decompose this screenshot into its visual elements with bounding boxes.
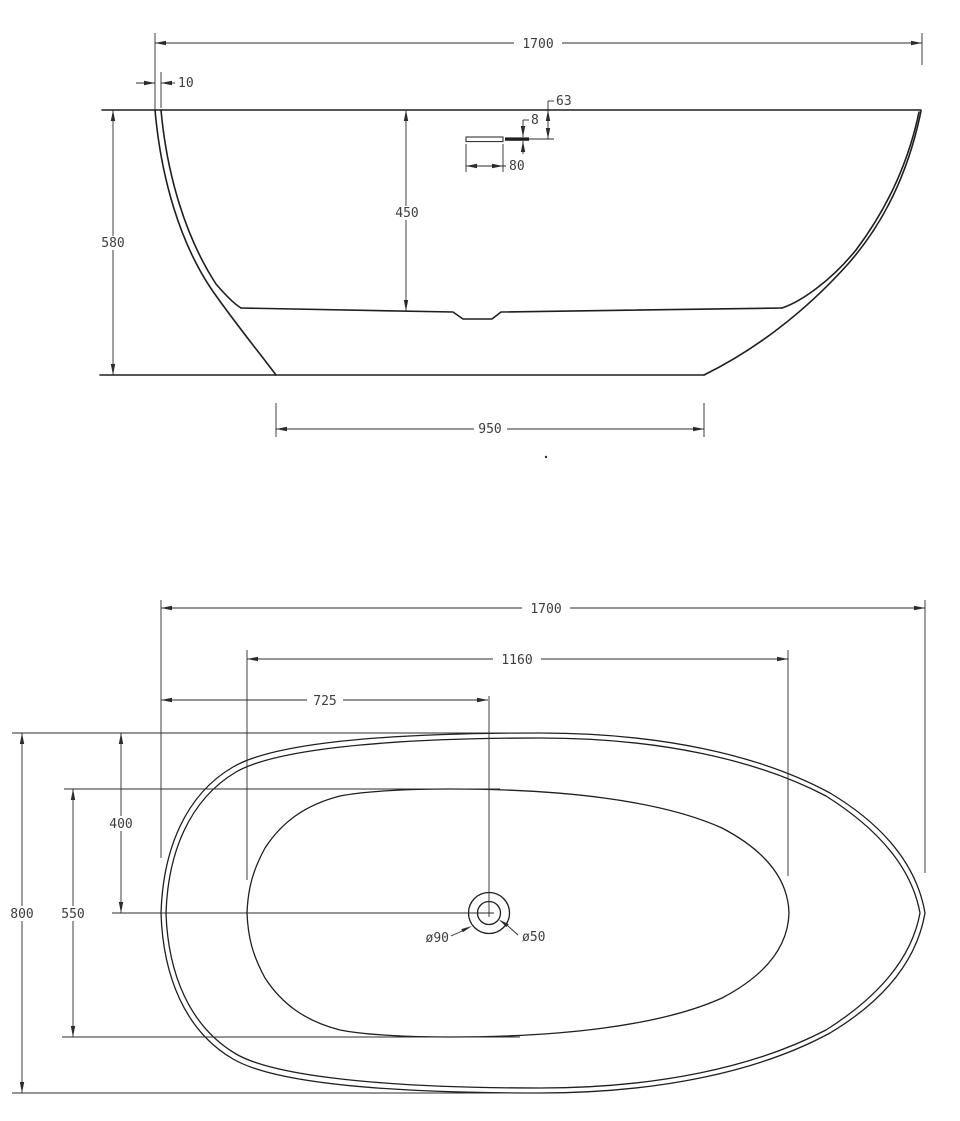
arrowhead (546, 110, 550, 121)
arrowhead (71, 1026, 75, 1037)
inner-floor-line-with-drain-recess (241, 308, 782, 319)
leader-line (451, 931, 463, 936)
arrowhead (466, 164, 477, 168)
arrowhead (71, 789, 75, 800)
overflow-slot-rect (466, 137, 503, 142)
arrowhead (477, 698, 488, 702)
dim-overall-width: 800 (6, 733, 38, 1093)
arrowhead (161, 698, 172, 702)
arrowhead (247, 657, 258, 661)
arrowhead (119, 733, 123, 744)
arrowhead (492, 164, 503, 168)
dim-label-rim-thickness: 10 (178, 76, 194, 91)
plan-view: 1700 1160 725 800 (6, 600, 925, 1093)
dim-overflow-slot-height: 8 (521, 113, 539, 154)
dim-label-overflow-drop: 63 (556, 94, 572, 109)
arrowhead (521, 141, 525, 152)
inner-wall-left (161, 110, 241, 308)
arrowhead (20, 733, 24, 744)
dim-label-inner-depth: 450 (395, 206, 418, 221)
dim-center-from-top: 400 (105, 733, 137, 913)
arrowhead (914, 606, 925, 610)
dim-label-plan-overall-length: 1700 (530, 602, 561, 617)
arrowhead (404, 300, 408, 311)
dim-label-overflow-slot-height: 8 (531, 113, 539, 128)
dim-label-inner-length: 1160 (501, 653, 532, 668)
outer-wall-right (704, 111, 921, 375)
leader-drain-inner-dia: ø50 (499, 919, 546, 945)
dim-rim-thickness: 10 (136, 72, 194, 108)
dim-label-center-from-top: 400 (109, 817, 132, 832)
bathtub-technical-drawing: 1700 10 580 450 (0, 0, 960, 1121)
arrowhead (111, 364, 115, 375)
stray-dot-mark (545, 456, 547, 458)
arrowhead (155, 41, 166, 45)
dim-base-length: 950 (276, 403, 704, 437)
dim-overflow-slot-width: 80 (466, 144, 525, 174)
dim-label-overflow-slot-width: 80 (509, 159, 525, 174)
arrowhead (111, 110, 115, 121)
arrowhead (777, 657, 788, 661)
arrowhead (521, 126, 525, 137)
arrowhead (20, 1082, 24, 1093)
side-elevation-view: 1700 10 580 450 (98, 33, 922, 458)
dim-label-drain-from-left: 725 (313, 694, 336, 709)
dim-side-overall-length: 1700 (155, 33, 922, 110)
label-drain-outer-dia: ø90 (426, 931, 449, 946)
leader-drain-outer-dia: ø90 (426, 926, 472, 946)
leader-line (508, 926, 518, 935)
arrowhead (144, 81, 155, 85)
arrowhead (276, 427, 287, 431)
dim-label-side-overall-length: 1700 (522, 37, 553, 52)
dim-label-overall-width: 800 (10, 907, 33, 922)
arrowhead (161, 606, 172, 610)
dim-label-inner-width: 550 (61, 907, 84, 922)
dim-inner-width: 550 (57, 789, 89, 1037)
arrowhead (161, 81, 172, 85)
dim-label-overall-height: 580 (101, 236, 124, 251)
arrowhead (461, 926, 472, 932)
arrowhead (693, 427, 704, 431)
arrowhead (546, 128, 550, 139)
dim-drain-from-left: 725 (161, 693, 488, 709)
label-drain-inner-dia: ø50 (522, 930, 545, 945)
dim-inner-depth: 450 (391, 110, 422, 311)
inner-wall-right (782, 112, 919, 308)
dim-inner-length: 1160 (247, 650, 788, 880)
dim-overflow-drop: 63 (546, 94, 572, 139)
dim-overall-height: 580 (98, 110, 129, 375)
overflow-section-bar (505, 137, 529, 140)
arrowhead (911, 41, 922, 45)
technical-drawing-canvas: 1700 10 580 450 (0, 0, 960, 1121)
dim-label-base-length: 950 (478, 422, 501, 437)
outer-wall-left (155, 110, 276, 375)
dim-plan-overall-length: 1700 (161, 600, 925, 873)
arrowhead (119, 902, 123, 913)
arrowhead (404, 110, 408, 121)
